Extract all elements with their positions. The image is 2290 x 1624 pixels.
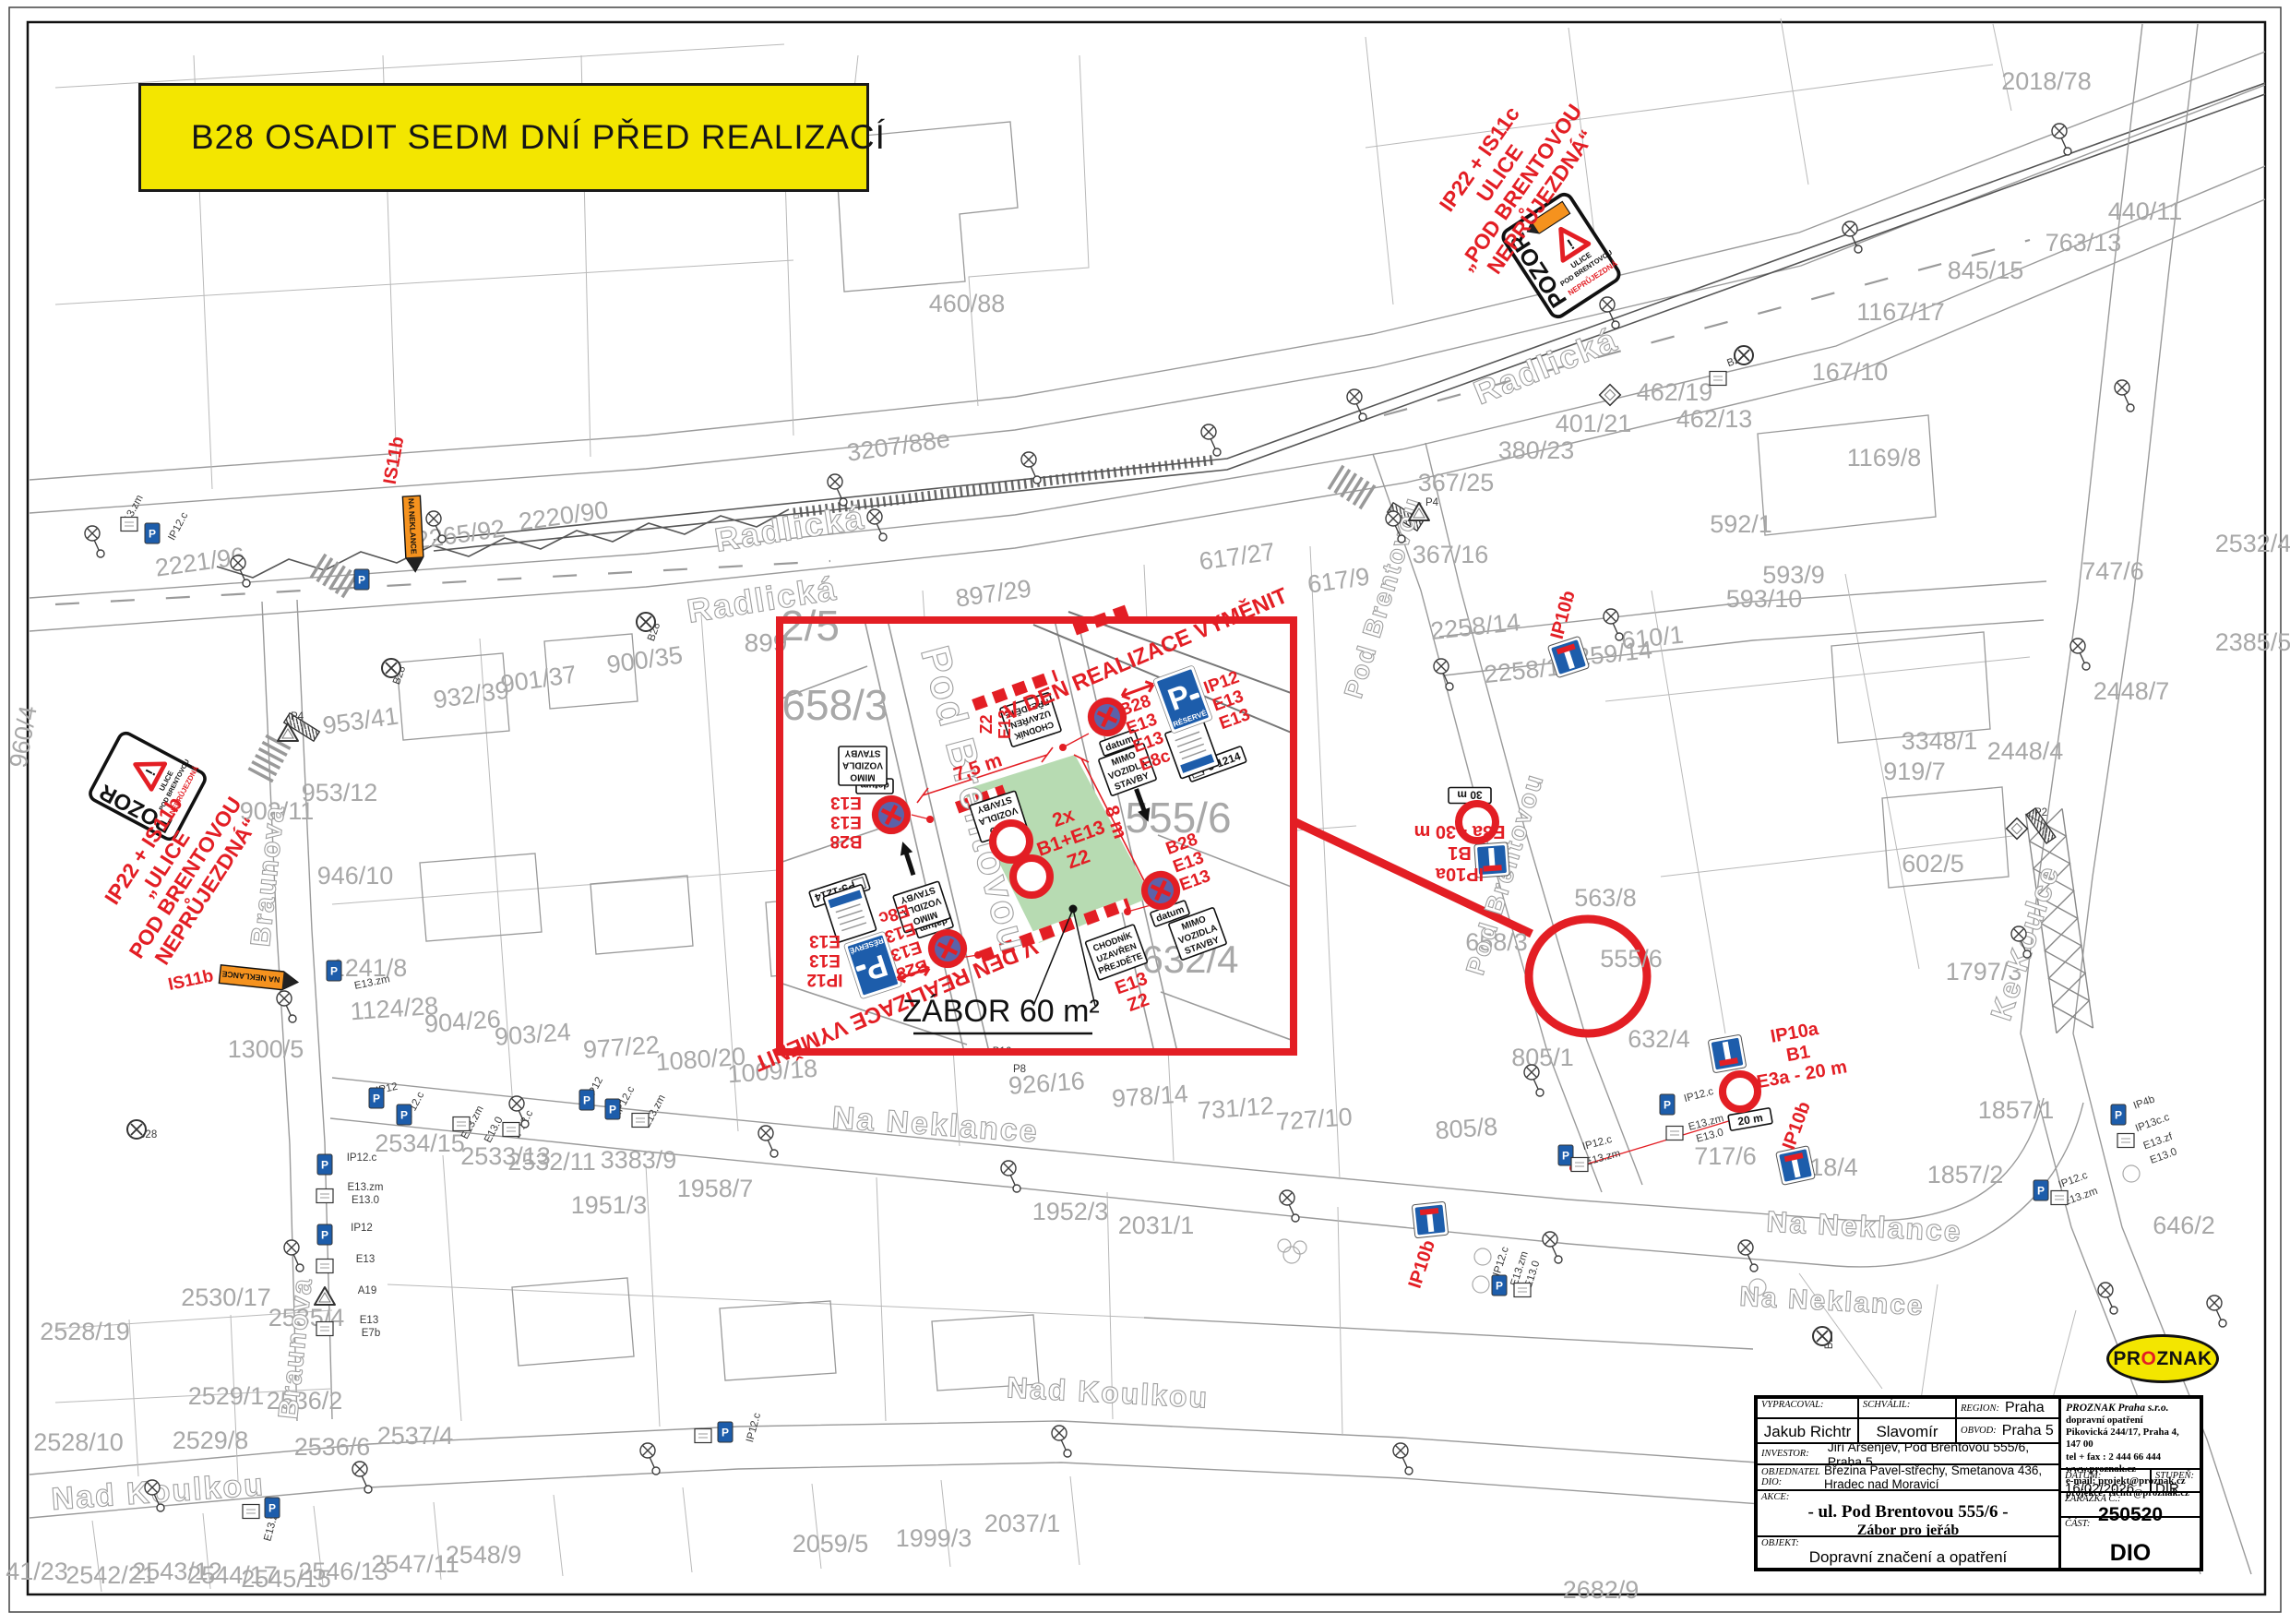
parcel-label: 462/13 [1676, 405, 1753, 433]
svg-text:P: P [321, 1229, 328, 1242]
parcel-label: 555/6 [1600, 945, 1663, 973]
schvalil-label: SCHVÁLIL: [1863, 1400, 1951, 1410]
svg-text:MIMO: MIMO [850, 771, 875, 782]
street-lamp-icon [1393, 1443, 1413, 1475]
sign-code-label: E13.0 [2149, 1146, 2178, 1166]
b28-map-symbol-icon [637, 613, 655, 631]
parcel-label: 3207/88e [845, 424, 952, 466]
sign-code-label: IP12 [351, 1223, 373, 1234]
plate-sign-mini-icon [243, 1505, 259, 1519]
is11-direction-arrow-sign: NA NEKLANCE [219, 965, 298, 991]
sign-code-label: IP12.c [745, 1412, 763, 1444]
plate-sign-mini-icon [1514, 1284, 1531, 1297]
sign-code-label: E13 [356, 1254, 375, 1265]
svg-text:P: P [2115, 1109, 2122, 1122]
region-cell: REGION:Praha [1957, 1399, 2058, 1417]
b28-map-symbol-icon [1813, 1327, 1831, 1345]
vypracoval-label-cell: VYPRACOVAL: [1758, 1399, 1859, 1417]
plate-sign-mini-icon [2117, 1134, 2134, 1148]
red-code-label: IP10b [1405, 1237, 1439, 1291]
parking-sign-mini-icon: P [265, 1498, 280, 1518]
parking-sign-mini-icon: P [718, 1422, 733, 1442]
plate-sign-mini-icon [316, 1322, 333, 1336]
sign-code-label: E13.0 [352, 1195, 379, 1206]
svg-text:P: P [583, 1094, 590, 1107]
banner-note: B28 OSADIT SEDM DNÍ PŘED REALIZACÍ [138, 83, 869, 192]
parcel-label: 953/41 [321, 701, 400, 739]
parcel-label: 617/9 [1306, 563, 1371, 599]
street-lamp-icon [2207, 1296, 2226, 1327]
sign-code-label: E13.zm [348, 1182, 384, 1193]
plate-sign-mini-icon [1666, 1127, 1683, 1140]
plate-sign-mini-icon [632, 1114, 649, 1128]
street-lamp-icon [640, 1443, 660, 1475]
parcel-label: 617/27 [1198, 537, 1277, 575]
parcel-label: 462/19 [1637, 378, 1713, 406]
investor-value: Jiří Arsenjev, Pod Brentovou 555/6, Prah… [1828, 1444, 2055, 1463]
sign-code-label: P2 [2034, 807, 2047, 818]
title-block: VYPRACOVAL: SCHVÁLIL: REGION:Praha Jakub… [1754, 1395, 2203, 1571]
parcel-label: 2537/4 [377, 1422, 454, 1450]
parcel-label: 763/13 [2045, 229, 2122, 257]
parcel-label: 646/2 [2153, 1212, 2215, 1239]
parcel-label: 658/3 [781, 681, 888, 729]
company-line: tel + fax : 2 444 66 444 [2066, 1451, 2195, 1463]
parcel-label: 978/14 [1111, 1080, 1188, 1113]
svg-text:P: P [330, 965, 338, 978]
parcel-label: 2682/9 [1563, 1576, 1640, 1604]
objednatel-value: Březina Pavel-střechy, Smetanova 436, Hr… [1824, 1465, 2055, 1489]
svg-text:P: P [149, 528, 156, 541]
parcel-label: 1999/3 [896, 1524, 972, 1552]
parking-sign-mini-icon: P [317, 1224, 332, 1245]
parking-sign-mini-icon: P [579, 1090, 594, 1110]
parcel-label: 805/1 [1511, 1044, 1574, 1071]
parking-sign-mini-icon: P [1660, 1094, 1675, 1115]
objekt-value: Dopravní značení a opatření [1761, 1548, 2055, 1567]
parcel-label: 2548/9 [446, 1541, 522, 1569]
datum-cell: DATUM:16/02/2026 [2061, 1470, 2152, 1491]
info-plate: 30 m [1449, 788, 1491, 804]
street-name: Na Neklance [831, 1100, 1040, 1150]
sign-code-label: IP12.c [166, 510, 190, 543]
street-lamp-icon [758, 1126, 778, 1157]
parcel-label: 2059/5 [793, 1530, 869, 1558]
red-code-label: IP10b [1779, 1099, 1815, 1152]
parcel-label: 919/7 [1883, 758, 1946, 785]
street-name: Nad Koulkou [1006, 1370, 1210, 1414]
parcel-label: 1167/17 [1856, 298, 1945, 326]
plate-sign-mini-icon [695, 1429, 711, 1443]
svg-text:P: P [268, 1502, 276, 1515]
svg-text:P: P [2037, 1185, 2045, 1198]
cast-cell: ČÁST:DIO [2061, 1518, 2200, 1568]
plate-sign-mini-icon [121, 518, 137, 531]
red-annotation: IP10aB1E3a - 20 m [1747, 1015, 1848, 1093]
street-lamp-icon [1738, 1240, 1758, 1272]
sign-code-label: P8 [1013, 1064, 1026, 1075]
parking-sign-mini-icon: P [397, 1105, 411, 1125]
parcel-label: 845/15 [1948, 257, 2024, 284]
akce-line1: - ul. Pod Brentovou 555/6 - [1761, 1502, 2055, 1522]
parcel-label: 2532/11 [507, 1148, 596, 1176]
dead-end-sign-icon [1708, 1034, 1747, 1073]
parcel-label: 2448/4 [1987, 737, 2064, 765]
street-lamp-icon [284, 1240, 304, 1272]
parcel-label: 977/22 [582, 1031, 660, 1064]
parking-sign-mini-icon: P [1492, 1275, 1507, 1296]
plate-sign-mini-icon [316, 1189, 333, 1203]
parcel-label: 2037/1 [984, 1510, 1061, 1537]
is11-direction-arrow-sign: NA NEKLANCE [402, 496, 423, 572]
plate-sign-mini-icon [1710, 372, 1726, 386]
parcel-label: 367/25 [1418, 469, 1495, 496]
svg-text:P: P [609, 1104, 616, 1116]
parcel-label: 593/10 [1726, 585, 1803, 613]
company-info: PROZNAK Praha s.r.o.dopravní opatřeníPik… [2061, 1399, 2200, 1470]
parcel-label: 1857/1 [1978, 1096, 2055, 1124]
parcel-label: 903/24 [494, 1018, 571, 1051]
svg-text:P: P [722, 1427, 729, 1439]
sign-code-label: A19 [358, 1285, 376, 1296]
parcel-label: 602/5 [1902, 850, 1964, 878]
obvod-value: Praha 5 [2002, 1423, 2054, 1439]
parcel-label: 1952/3 [1032, 1198, 1109, 1225]
b28-map-symbol-icon [382, 659, 400, 677]
street-lamp-icon [867, 509, 887, 541]
parking-sign-mini-icon: P [2034, 1180, 2048, 1200]
street-lamp-icon [1052, 1426, 1071, 1457]
street-lamp-icon [2098, 1283, 2117, 1314]
parcel-label: 1951/3 [571, 1191, 648, 1219]
vypracoval-label: VYPRACOVAL: [1761, 1400, 1854, 1410]
dead-end-sign-icon [1412, 1201, 1449, 1238]
street-lamp-icon [2070, 639, 2090, 670]
sign-code-label: IP12.c [347, 1152, 377, 1164]
parking-sign-mini-icon: P [605, 1099, 620, 1119]
svg-text:P: P [358, 574, 365, 587]
plate-sign-mini-icon [316, 1260, 333, 1273]
akce-cell: AKCE: - ul. Pod Brentovou 555/6 - Zábor … [1758, 1491, 2058, 1535]
plate-sign-mini-icon [2051, 1191, 2068, 1205]
cast-value: DIO [2065, 1540, 2196, 1567]
parcel-label: 167/10 [1812, 358, 1889, 386]
parcel-label: 900/35 [605, 640, 685, 678]
banner-text: B28 OSADIT SEDM DNÍ PŘED REALIZACÍ [191, 118, 886, 157]
company-line: dopravní opatření [2066, 1415, 2195, 1427]
parcel-label: 592/1 [1710, 510, 1772, 538]
objekt-cell: OBJEKT: Dopravní značení a opatření [1758, 1537, 2058, 1568]
parcel-label: 3348/1 [1902, 727, 1978, 755]
investor-cell: INVESTOR:Jiří Arsenjev, Pod Brentovou 55… [1758, 1444, 2058, 1463]
parking-sign-mini-icon: P [369, 1088, 384, 1108]
street-lamp-icon [1201, 424, 1221, 456]
region-value: Praha [2005, 1400, 2045, 1416]
sign-code-label: E7b [362, 1328, 380, 1339]
parking-sign-mini-icon: P [327, 961, 341, 981]
obvod-cell: OBVOD:Praha 5 [1957, 1419, 2058, 1442]
sign-code-label: IP12.c [1581, 1134, 1614, 1152]
parcel-label: 747/6 [2081, 557, 2144, 585]
sign-code-label: P4 [291, 711, 304, 722]
street-name: Radlická [712, 498, 867, 559]
parcel-label: 1169/8 [1847, 444, 1922, 472]
svg-text:P: P [373, 1093, 380, 1105]
red-annotation: B28E13E13 [830, 793, 863, 851]
datum-value: 16/02/2026 [2065, 1481, 2134, 1491]
parcel-label: 2528/19 [40, 1318, 130, 1345]
parcel-label: 2258/14 [1429, 608, 1521, 645]
parcel-label: 2534/15 [375, 1129, 465, 1157]
b1-no-entry-icon [993, 823, 1030, 860]
parcel-label: 1958/7 [677, 1175, 754, 1202]
plate-sign-mini-icon [1571, 1158, 1588, 1172]
sign-code-label: E13.0 [483, 1116, 506, 1145]
stupen-value: DIR [2155, 1481, 2179, 1491]
stupen-cell: STUPEŇ:DIR [2152, 1470, 2200, 1491]
parcel-label: 632/4 [1628, 1025, 1690, 1053]
parcel-label: 2529/8 [173, 1427, 249, 1454]
street-lamp-icon [2115, 380, 2134, 412]
warning-triangle-icon [315, 1287, 335, 1305]
sign-code-label: IP13c.c [2134, 1112, 2171, 1134]
parcel-label: 563/8 [1574, 884, 1637, 912]
company-line: Pikovická 244/17, Praha 4, 147 00 [2066, 1427, 2195, 1451]
sign-code-label: IP12.c [1491, 1245, 1511, 1277]
street-name: Na Neklance [1739, 1282, 1926, 1321]
street-name: Pod Brentovou [1339, 493, 1427, 701]
parcel-label: 1857/2 [1927, 1161, 2004, 1188]
parcel-label: 897/29 [954, 574, 1033, 612]
street-name: Na Neklance [1766, 1204, 1963, 1248]
work-location-circle [1529, 919, 1647, 1033]
parcel-label: 367/16 [1413, 541, 1489, 568]
red-code-label: IS11b [380, 435, 409, 485]
parcel-label: 2220/90 [517, 496, 610, 535]
parcel-label: 904/26 [423, 1005, 501, 1038]
parcel-label: 440/11 [2108, 197, 2183, 225]
red-annotation: IP12E13E13 [806, 931, 842, 989]
parcel-label: 727/10 [1275, 1103, 1353, 1136]
svg-text:P: P [400, 1109, 408, 1122]
street-lamp-icon [1347, 389, 1366, 421]
objednatel-cell: OBJEDNATEL DIO:Březina Pavel-střechy, Sm… [1758, 1465, 2058, 1489]
parcel-label: 2532/4 [2215, 530, 2290, 557]
company-line: PROZNAK Praha s.r.o. [2066, 1402, 2195, 1415]
parcel-label: 932/39 [432, 675, 511, 713]
vypracoval-value: Jakub Richtr [1758, 1419, 1859, 1442]
svg-text:P: P [1664, 1099, 1671, 1112]
logo-o: O [2141, 1348, 2157, 1370]
info-plate: MIMOVOZIDLASTAVBY [839, 746, 887, 785]
parcel-label: 2528/10 [33, 1428, 124, 1456]
parking-sign-mini-icon: P [145, 523, 160, 543]
sign-code-label: E13 [360, 1315, 378, 1326]
plate-sign-mini-icon [503, 1123, 519, 1137]
street-lamp-icon [1543, 1232, 1562, 1263]
svg-text:VOZIDLA: VOZIDLA [842, 759, 883, 770]
sign-code-label: P4 [1425, 497, 1439, 508]
b1-no-entry-icon [1013, 858, 1050, 895]
parking-sign-mini-icon: P [317, 1154, 332, 1175]
svg-text:P: P [1562, 1150, 1569, 1163]
sign-code-label: IP12.c [2057, 1170, 2090, 1191]
parcel-label: 2448/7 [2093, 677, 2170, 705]
parcel-label: 901/37 [499, 660, 578, 698]
b28-map-symbol-icon [1735, 346, 1753, 364]
parcel-label: 3383/9 [601, 1146, 677, 1174]
sign-code-label: IP12.c [1683, 1086, 1715, 1105]
parking-sign-mini-icon: P [2111, 1105, 2126, 1125]
parcel-label: 2018/78 [2001, 67, 2092, 95]
parking-sign-mini-icon: P [354, 569, 369, 590]
parcel-label: 380/23 [1498, 436, 1575, 464]
parcel-label: 946/10 [317, 862, 394, 890]
parcel-label: 805/8 [1435, 1113, 1499, 1145]
zabor-area-label: ZÁBOR 60 m² [902, 994, 1099, 1029]
red-code-label: IS11b [166, 966, 215, 995]
svg-text:P: P [1496, 1280, 1503, 1293]
parcel-label: 460/88 [929, 290, 1006, 317]
parcel-label: 2031/1 [1118, 1212, 1195, 1239]
schvalil-label-cell: SCHVÁLIL: [1859, 1399, 1957, 1417]
b28-map-symbol-icon [127, 1120, 146, 1139]
parcel-label: 717/6 [1694, 1142, 1757, 1170]
svg-text:P: P [321, 1159, 328, 1172]
parcel-label: 731/12 [1197, 1092, 1274, 1125]
parcel-label: 401/21 [1556, 410, 1632, 437]
street-lamp-icon [1604, 609, 1623, 640]
street-name: Radlická [1469, 320, 1623, 412]
zakazka-cell: ZAKÁZKA Č.:250520 [2061, 1493, 2200, 1518]
street-lamp-icon [85, 526, 104, 557]
parcel-label: 1300/5 [228, 1035, 304, 1063]
plate-sign-mini-icon [453, 1117, 470, 1131]
proznak-logo: PROZNAK [2106, 1334, 2219, 1383]
street-lamp-icon [277, 991, 296, 1022]
parcel-label: 2530/17 [181, 1284, 271, 1311]
svg-text:STAVBY: STAVBY [844, 747, 880, 758]
akce-line2: Zábor pro jeřáb [1761, 1522, 2055, 1535]
sign-code-label: IP4b [2132, 1093, 2156, 1111]
svg-text:30 m: 30 m [1457, 789, 1482, 802]
parcel-label: 41/23 [6, 1558, 68, 1585]
red-code-label: IP10b [1547, 589, 1580, 641]
b1-no-entry-icon [1723, 1074, 1758, 1109]
parcel-label: 2385/5 [2215, 628, 2290, 656]
street-lamp-icon [1280, 1190, 1299, 1222]
schvalil-value: Slavomír Glatz [1859, 1419, 1957, 1442]
site-plan-map: 2221/962265/922220/903207/88e460/88897/2… [0, 0, 2290, 1619]
traffic-plan-page: { "colors":{"red":"#e31e24","yellow":"#f… [0, 0, 2290, 1619]
parcel-label: 2529/1 [188, 1382, 265, 1410]
parcel-label: 2536/6 [294, 1433, 371, 1461]
